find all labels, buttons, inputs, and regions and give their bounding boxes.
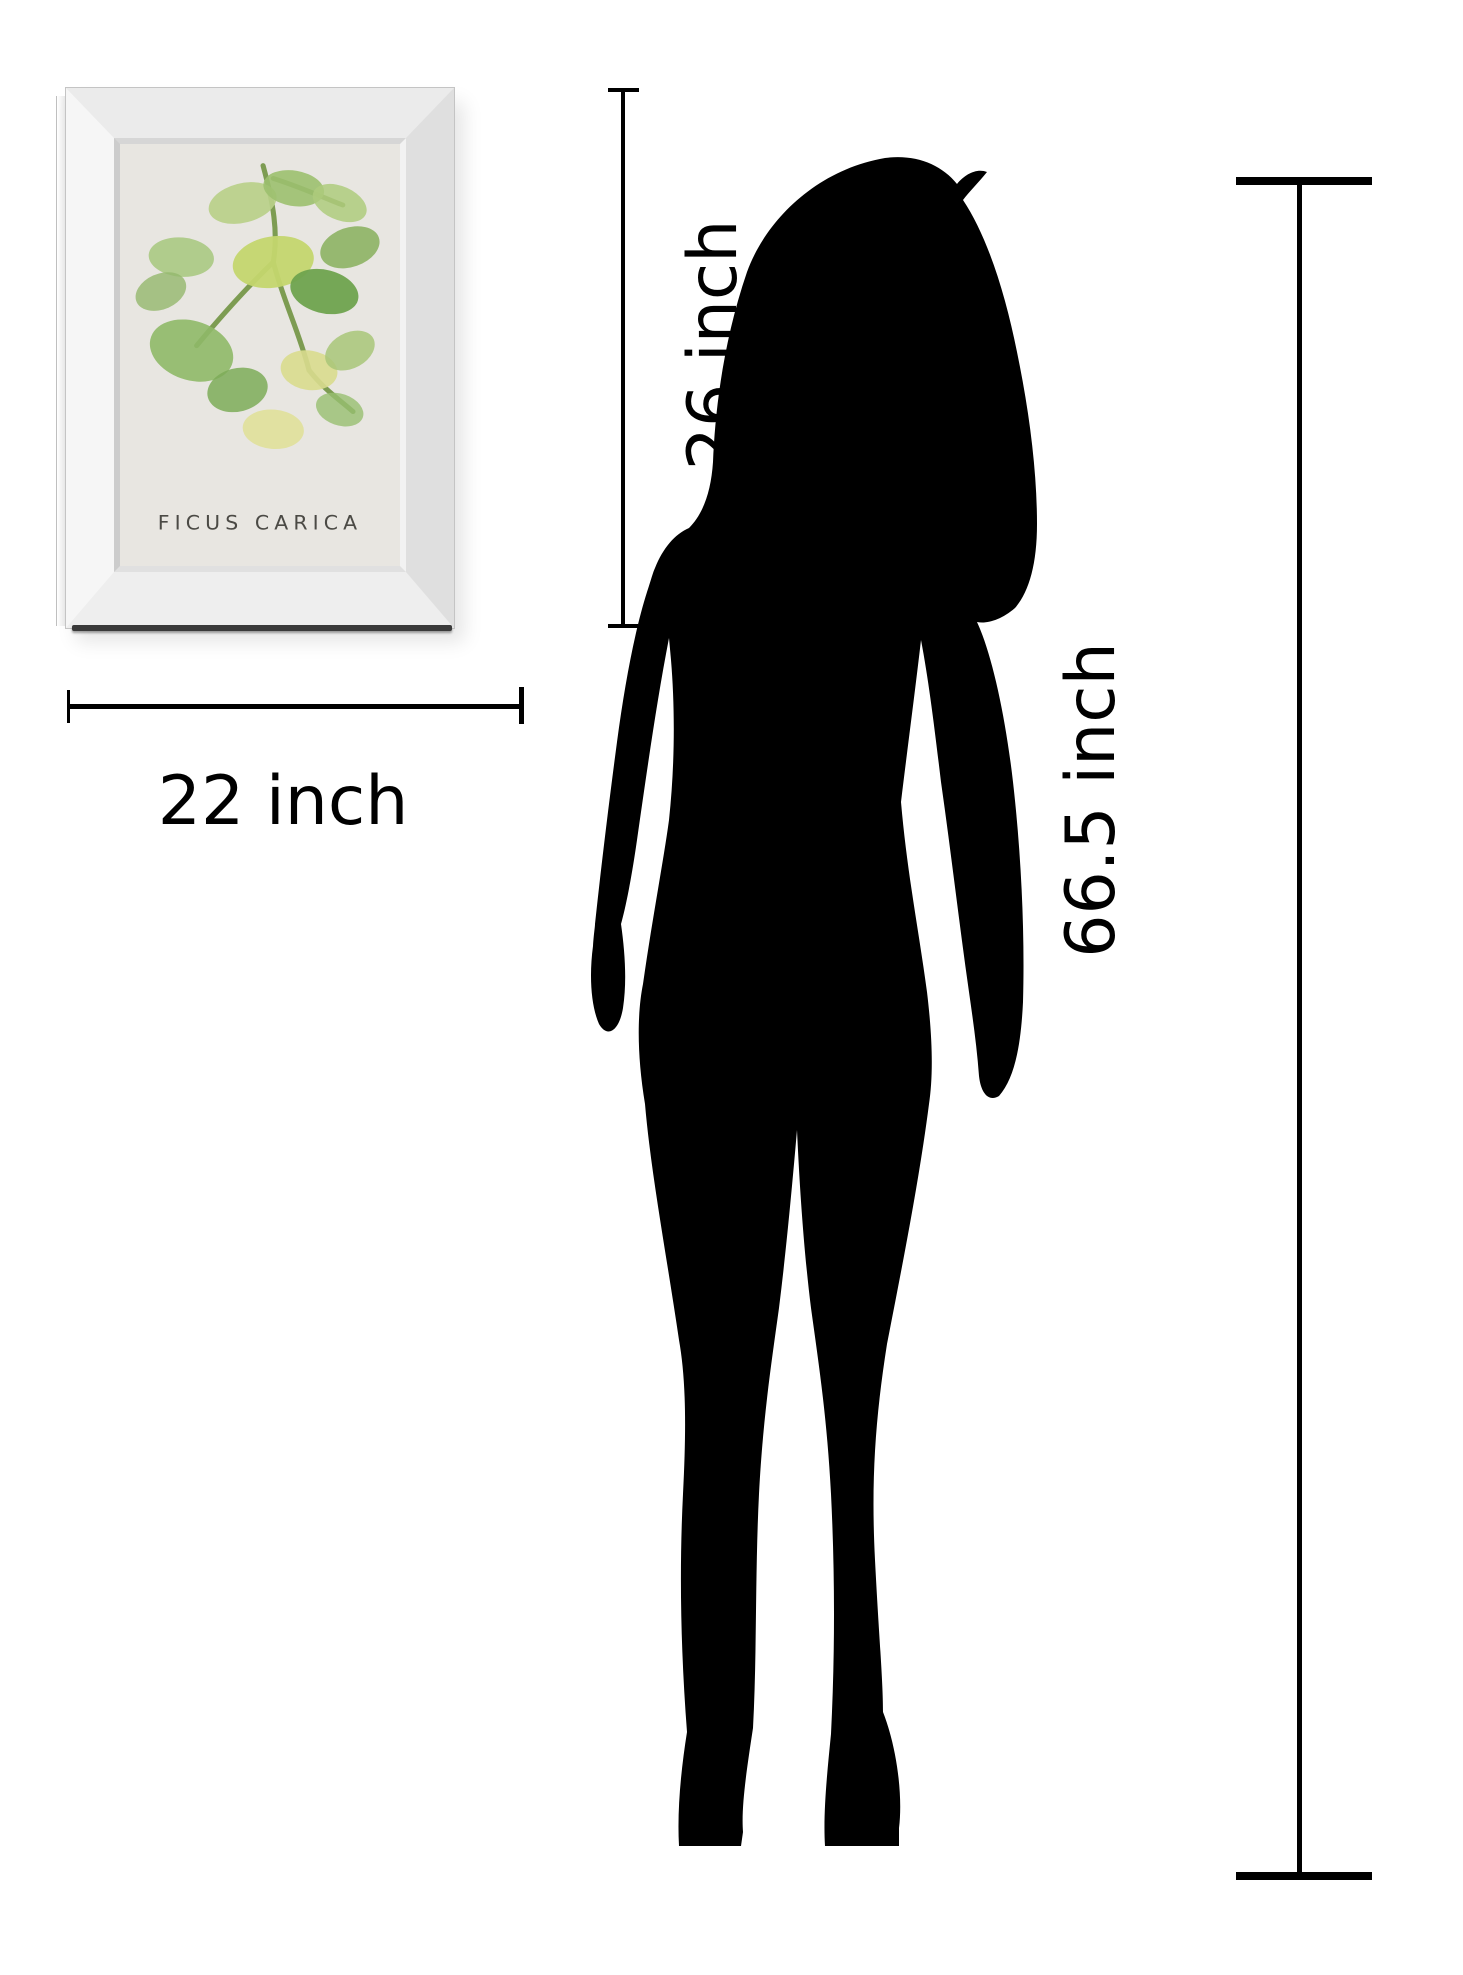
- person-height-dim-cap-bottom: [1236, 1872, 1372, 1880]
- width-dim-cap-right: [519, 687, 524, 724]
- person-height-dim-line: [1297, 181, 1302, 1876]
- width-dim-label: 22 inch: [133, 762, 433, 842]
- watercolor-leaves-illustration: FICUS CARICA: [120, 144, 400, 566]
- artwork-canvas: FICUS CARICA: [120, 144, 400, 566]
- person-height-dim-cap-top: [1236, 177, 1372, 185]
- woman-silhouette: [585, 152, 1080, 1857]
- size-comparison-diagram: FICUS CARICA 26 inch 22 inch 66.5 inch: [0, 0, 1463, 1975]
- width-dim-line: [68, 704, 523, 709]
- artwork-caption: FICUS CARICA: [158, 511, 362, 535]
- picture-frame: FICUS CARICA: [66, 88, 454, 628]
- person-height-dim-label: 66.5 inch: [1052, 620, 1132, 980]
- frame-bottom-shadow: [72, 625, 452, 631]
